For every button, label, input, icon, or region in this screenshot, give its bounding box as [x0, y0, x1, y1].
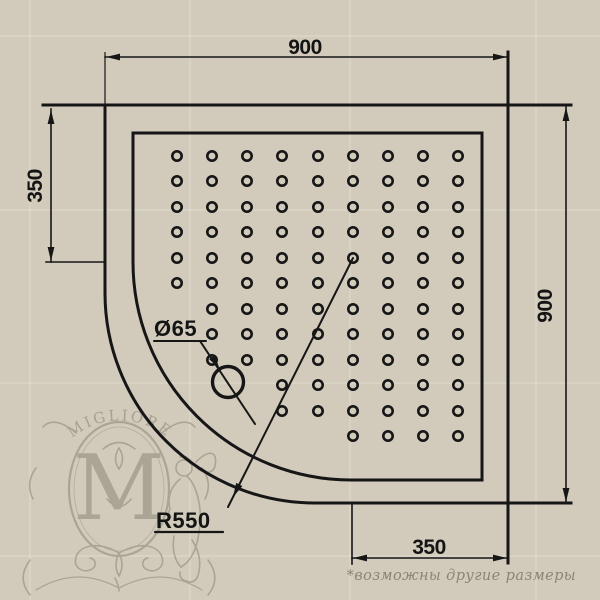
anti-slip-dot [207, 176, 216, 185]
anti-slip-dot [277, 380, 286, 389]
anti-slip-dot [242, 329, 251, 338]
anti-slip-dot [453, 406, 462, 415]
anti-slip-dot [207, 227, 216, 236]
arrowhead-left [106, 54, 120, 61]
anti-slip-dot [172, 227, 181, 236]
dimension-label-left: 350 [24, 169, 47, 203]
anti-slip-dot [453, 278, 462, 287]
anti-slip-dot [418, 406, 427, 415]
anti-slip-dot [383, 176, 392, 185]
anti-slip-dot [242, 253, 251, 262]
dimension-top-width: 900 [105, 36, 508, 105]
dimension-label-bottom: 350 [412, 536, 446, 559]
anti-slip-dot [313, 253, 322, 262]
dimension-left-offset: 350 [24, 109, 105, 262]
anti-slip-dot [242, 151, 251, 160]
anti-slip-dot [172, 278, 181, 287]
anti-slip-dot [242, 304, 251, 313]
dimension-right-height: 900 [534, 107, 569, 503]
anti-slip-dot [242, 278, 251, 287]
corner-radius-label: R550 [156, 508, 211, 533]
anti-slip-dot [383, 253, 392, 262]
anti-slip-dot [453, 304, 462, 313]
anti-slip-dot [383, 380, 392, 389]
corner-radius-callout: R550 [155, 258, 353, 533]
anti-slip-dot [313, 176, 322, 185]
anti-slip-dot [277, 227, 286, 236]
anti-slip-dot [418, 278, 427, 287]
anti-slip-dot [313, 406, 322, 415]
footnote-text: *возможны другие размеры [347, 568, 576, 584]
anti-slip-dot [453, 329, 462, 338]
arrowhead-top [563, 107, 570, 121]
anti-slip-dot [418, 304, 427, 313]
anti-slip-dot [313, 304, 322, 313]
dimension-bottom-offset: 350 [352, 505, 508, 564]
anti-slip-dot [418, 176, 427, 185]
brand-watermark: MIGLIORE M [23, 406, 215, 595]
anti-slip-dot [207, 253, 216, 262]
anti-slip-dot [207, 151, 216, 160]
anti-slip-dot [277, 151, 286, 160]
anti-slip-dot [418, 431, 427, 440]
anti-slip-dot [313, 227, 322, 236]
anti-slip-dot [418, 151, 427, 160]
anti-slip-dot [418, 355, 427, 364]
arrowhead-top [48, 110, 55, 124]
anti-slip-dot [313, 278, 322, 287]
arrowhead-right [493, 54, 507, 61]
inner-floor-outline [133, 133, 482, 480]
anti-slip-dot [207, 329, 216, 338]
anti-slip-dot [207, 278, 216, 287]
anti-slip-dot [172, 253, 181, 262]
anti-slip-dot [242, 355, 251, 364]
anti-slip-dot [207, 304, 216, 313]
anti-slip-dot [418, 227, 427, 236]
anti-slip-dot [383, 406, 392, 415]
anti-slip-dot [242, 227, 251, 236]
anti-slip-dot [277, 355, 286, 364]
anti-slip-dot [383, 227, 392, 236]
anti-slip-dot [453, 227, 462, 236]
dimension-label-right: 900 [534, 289, 557, 323]
anti-slip-dot [313, 151, 322, 160]
drain-diameter-label: Ø65 [154, 316, 197, 341]
anti-slip-dot [418, 253, 427, 262]
anti-slip-dot [277, 329, 286, 338]
anti-slip-dot [383, 329, 392, 338]
anti-slip-dot [242, 176, 251, 185]
anti-slip-dot [172, 176, 181, 185]
technical-drawing-page: MIGLIORE M [0, 0, 600, 600]
anti-slip-dot [418, 329, 427, 338]
anti-slip-dot [383, 278, 392, 287]
anti-slip-dot [453, 253, 462, 262]
anti-slip-dot [453, 431, 462, 440]
anti-slip-dot [277, 278, 286, 287]
arrowhead-bottom [48, 247, 55, 261]
shower-tray-drawing: MIGLIORE M [0, 0, 600, 600]
anti-slip-dot [383, 355, 392, 364]
anti-slip-dot [277, 176, 286, 185]
anti-slip-dot [418, 380, 427, 389]
anti-slip-dot [313, 380, 322, 389]
anti-slip-dot [383, 431, 392, 440]
anti-slip-dot [453, 151, 462, 160]
anti-slip-dot [383, 304, 392, 313]
anti-slip-dot [383, 151, 392, 160]
dimension-label-top: 900 [288, 36, 322, 59]
anti-slip-dots [172, 151, 462, 440]
anti-slip-dot [453, 380, 462, 389]
watermark-monogram: M [73, 436, 165, 541]
arrowhead-bottom [563, 488, 570, 502]
anti-slip-dot [172, 151, 181, 160]
anti-slip-dot [277, 253, 286, 262]
anti-slip-dot [453, 176, 462, 185]
anti-slip-dot [277, 304, 286, 313]
anti-slip-dot [453, 355, 462, 364]
anti-slip-dot [313, 355, 322, 364]
